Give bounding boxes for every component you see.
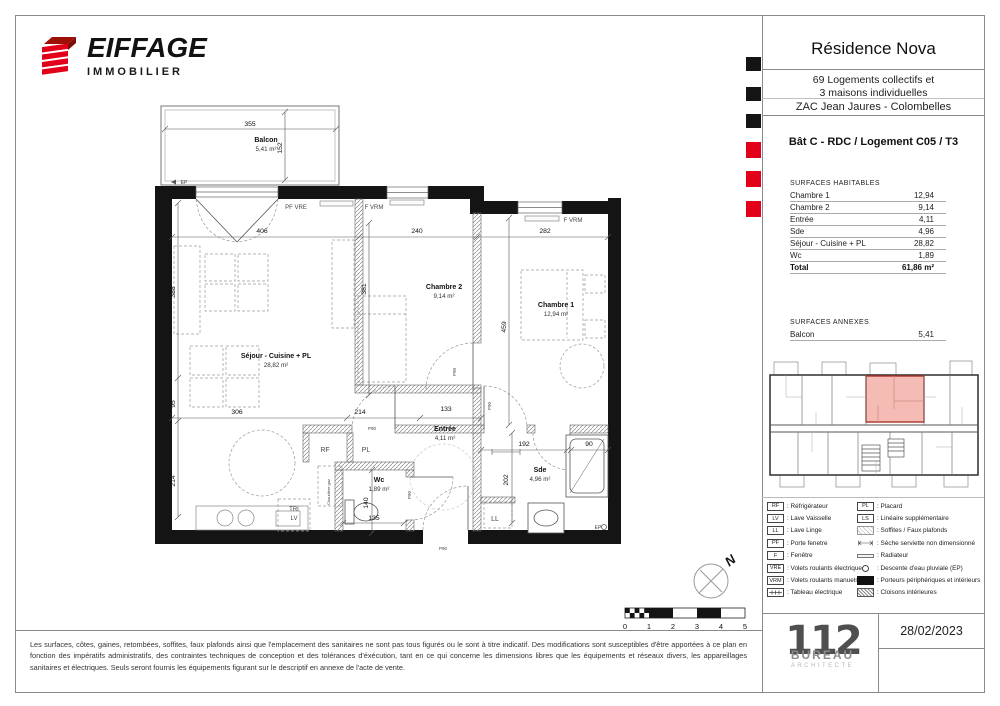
surface-area: 12,94 xyxy=(914,191,934,200)
legend-lv-icon: LV xyxy=(767,514,784,523)
surfaces-annexes-table: SURFACES ANNEXES Balcon5,41 xyxy=(790,319,946,341)
legend-right-column: PL: PlacardLS: Linéaire supplémentaire: … xyxy=(857,500,983,599)
legend-row: VRM: Volets roulants manuels xyxy=(767,574,859,586)
legend-row: LV: Lave Vaisselle xyxy=(767,512,859,524)
annotation-label: F VRM xyxy=(365,205,384,211)
annotation-label: P90 xyxy=(407,491,412,500)
annotation-label: TRI xyxy=(289,507,299,513)
legend-rf-icon: RF xyxy=(767,502,784,511)
legend-row: : Tableau électrique xyxy=(767,587,859,599)
legend-label: : Porteurs périphériques et intérieurs xyxy=(877,577,980,584)
legend-label: : Volets roulants manuels xyxy=(787,577,858,584)
architect-logo: 112 BUREAU ARCHITECTE xyxy=(770,621,875,669)
legend-ll-icon: LL xyxy=(767,526,784,535)
legend-ls-icon: LS xyxy=(857,514,874,523)
legend-row: PL: Placard xyxy=(857,500,983,512)
legend-row: LS: Linéaire supplémentaire xyxy=(857,512,983,524)
north-compass: N xyxy=(694,551,739,598)
legend-tableau-icon xyxy=(767,588,784,597)
surface-room: Entrée xyxy=(790,215,814,224)
north-label: N xyxy=(722,551,739,569)
annotation-label: PL xyxy=(362,447,371,454)
annotation-label: P90 xyxy=(439,546,448,551)
program-line1: 69 Logements collectifs et xyxy=(763,74,984,87)
total-value: 61,86 m² xyxy=(902,263,934,272)
legend-label: : Linéaire supplémentaire xyxy=(877,515,949,522)
dimension-label: 306 xyxy=(231,409,243,416)
legal-disclaimer: Les surfaces, côtes, gaines, retombées, … xyxy=(16,631,761,691)
annotation-label: F VRM xyxy=(564,218,583,224)
site-key-plan xyxy=(766,357,982,493)
legend-label: : Placard xyxy=(877,503,902,510)
legend-pl-icon: PL xyxy=(857,502,874,511)
surface-row: Séjour - Cuisine + PL28,82 xyxy=(790,238,946,250)
legend-row: : Descente d'eau pluviale (EP) xyxy=(857,562,983,574)
dimension-label: 459 xyxy=(501,321,508,333)
room-name: Entrée xyxy=(434,426,456,433)
room-area: 1,89 m² xyxy=(369,486,390,493)
interior-walls xyxy=(303,199,608,531)
annotation-label: PF VRE xyxy=(285,205,307,211)
surface-room: Séjour - Cuisine + PL xyxy=(790,239,866,248)
legend-radiator-icon xyxy=(857,554,874,558)
annotation-label: P90 xyxy=(487,402,492,411)
room-name: Séjour - Cuisine + PL xyxy=(241,353,312,360)
surface-row: Chambre 112,94 xyxy=(790,190,946,202)
dimension-label: 214 xyxy=(170,475,177,487)
legend-vrm-icon: VRM xyxy=(767,576,784,585)
program-description: 69 Logements collectifs et 3 maisons ind… xyxy=(763,74,984,100)
surface-row: Wc1,89 xyxy=(790,250,946,262)
room-area: 5,41 m² xyxy=(256,146,277,153)
legend-vre-icon: VRE xyxy=(767,564,784,573)
dimension-label: 135 xyxy=(368,515,380,522)
surface-row: Sde4,96 xyxy=(790,226,946,238)
scale-bar: 012345 xyxy=(623,608,747,631)
legend-row: PF: Porte fenetre xyxy=(767,537,859,549)
legend-black-icon xyxy=(857,576,874,585)
surface-room: Balcon xyxy=(790,330,814,339)
divider xyxy=(762,115,984,116)
dimension-label: 355 xyxy=(244,121,256,128)
room-area: 28,82 m² xyxy=(264,362,288,369)
reg-mark-red xyxy=(746,171,761,187)
surface-area: 9,14 xyxy=(918,203,934,212)
dimension-label: 133 xyxy=(440,406,452,413)
legend-label: : Fenêtre xyxy=(787,552,813,559)
reg-mark-black xyxy=(746,87,761,101)
dimension-label: 214 xyxy=(354,409,366,416)
room-area: 9,14 m² xyxy=(434,293,455,300)
surface-room: Wc xyxy=(790,251,802,260)
surface-area: 28,82 xyxy=(914,239,934,248)
legend-label: : Cloisons intérieures xyxy=(877,589,937,596)
legend-f-icon: F xyxy=(767,551,784,560)
legend-label: : Radiateur xyxy=(877,552,908,559)
legend-row: RF: Réfrigérateur xyxy=(767,500,859,512)
surface-row: Balcon5,41 xyxy=(790,329,946,341)
total-label: Total xyxy=(790,263,809,272)
legend-label: : Lave Vaisselle xyxy=(787,515,831,522)
legend-row: : Radiateur xyxy=(857,550,983,562)
dimension-label: 240 xyxy=(411,228,423,235)
reg-mark-black xyxy=(746,57,761,71)
plan-date: 28/02/2023 xyxy=(879,613,984,648)
surface-row: Chambre 29,14 xyxy=(790,202,946,214)
program-line2: 3 maisons individuelles xyxy=(763,87,984,100)
surfaces-total-row: Total 61,86 m² xyxy=(790,262,946,274)
legend-row: : Soffites / Faux plafonds xyxy=(857,525,983,537)
legend-label: : Porte fenetre xyxy=(787,540,828,547)
legend-label: : Tableau électrique xyxy=(787,589,842,596)
highlighted-unit xyxy=(866,376,924,422)
legend-circle-icon xyxy=(862,565,869,572)
legend-arrow-icon xyxy=(857,539,874,548)
room-area: 4,11 m² xyxy=(435,435,456,442)
legend-pf-icon: PF xyxy=(767,539,784,548)
dimension-label: 192 xyxy=(518,441,530,448)
annotation-label: EP xyxy=(595,525,602,531)
legend-row: : Sèche serviette non dimensionné xyxy=(857,537,983,549)
legend-label: : Sèche serviette non dimensionné xyxy=(877,540,975,547)
legend-row: LL: Lave Linge xyxy=(767,525,859,537)
project-location: ZAC Jean Jaures - Colombelles xyxy=(763,101,984,113)
legend-hatchl-icon xyxy=(857,526,874,535)
legend-left-column: RF: RéfrigérateurLV: Lave VaisselleLL: L… xyxy=(767,500,859,599)
floor-plan-sheet: EIFFAGE IMMOBILIER xyxy=(0,0,1000,706)
surfaces-habitables-title: SURFACES HABITABLES xyxy=(790,180,946,187)
room-name: Balcon xyxy=(254,137,277,144)
unit-reference: Bât C - RDC / Logement C05 / T3 xyxy=(763,136,984,148)
annotation-label: LV xyxy=(291,516,298,522)
surface-area: 5,41 xyxy=(918,330,934,339)
legend-row: : Cloisons intérieures xyxy=(857,587,983,599)
surface-room: Chambre 2 xyxy=(790,203,830,212)
dimension-label: 388 xyxy=(170,286,177,298)
dimension-label: 95 xyxy=(170,400,177,408)
surfaces-annexes-title: SURFACES ANNEXES xyxy=(790,319,946,326)
room-name: Chambre 1 xyxy=(538,302,574,309)
divider xyxy=(762,497,984,498)
legend-label: : Descente d'eau pluviale (EP) xyxy=(877,565,963,572)
dimension-label: 90 xyxy=(585,441,593,448)
surface-row: Entrée4,11 xyxy=(790,214,946,226)
surface-area: 1,89 xyxy=(918,251,934,260)
surface-room: Chambre 1 xyxy=(790,191,830,200)
annotation-label: EP xyxy=(181,180,188,186)
dimension-label: 202 xyxy=(503,474,510,486)
dimension-label: 282 xyxy=(539,228,551,235)
annotation-label: P90 xyxy=(452,368,457,377)
annotation-label: Chaudière gaz xyxy=(326,479,331,505)
balcony-outline xyxy=(161,106,339,185)
dimension-label: 152 xyxy=(277,142,284,154)
residence-title: Résidence Nova xyxy=(763,39,984,59)
dimension-label: 140 xyxy=(363,497,370,509)
surface-area: 4,96 xyxy=(918,227,934,236)
annotation-label: LL xyxy=(491,516,499,523)
room-area: 4,96 m² xyxy=(530,476,551,483)
divider xyxy=(878,648,984,649)
legend-label: : Volets roulants électriques xyxy=(787,565,865,572)
panel-divider xyxy=(762,15,763,692)
reg-mark-red xyxy=(746,142,761,158)
annotation-label: RF xyxy=(320,447,329,454)
legend-row: : Porteurs périphériques et intérieurs xyxy=(857,574,983,586)
room-area: 12,94 m² xyxy=(544,311,568,318)
floor-plan: N 012345 Balcon5,41 m²Séjour - Cuisine +… xyxy=(0,0,762,632)
room-name: Wc xyxy=(374,477,385,484)
legend-label: : Soffites / Faux plafonds xyxy=(877,527,947,534)
legend-hatchd-icon xyxy=(857,588,874,597)
surfaces-habitables-table: SURFACES HABITABLES Chambre 112,94Chambr… xyxy=(790,180,946,274)
legend-label: : Réfrigérateur xyxy=(787,503,828,510)
legend-row: VRE: Volets roulants électriques xyxy=(767,562,859,574)
dimension-label: 406 xyxy=(256,228,268,235)
reg-mark-red xyxy=(746,201,761,217)
legend-label: : Lave Linge xyxy=(787,527,822,534)
legend-row: F: Fenêtre xyxy=(767,550,859,562)
room-name: Chambre 2 xyxy=(426,284,462,291)
surface-room: Sde xyxy=(790,227,804,236)
reg-mark-black xyxy=(746,114,761,128)
annotation-label: P90 xyxy=(368,426,377,431)
divider xyxy=(762,69,984,70)
dimension-label: 381 xyxy=(361,283,368,295)
room-name: Sde xyxy=(534,467,547,474)
surface-area: 4,11 xyxy=(919,215,934,224)
